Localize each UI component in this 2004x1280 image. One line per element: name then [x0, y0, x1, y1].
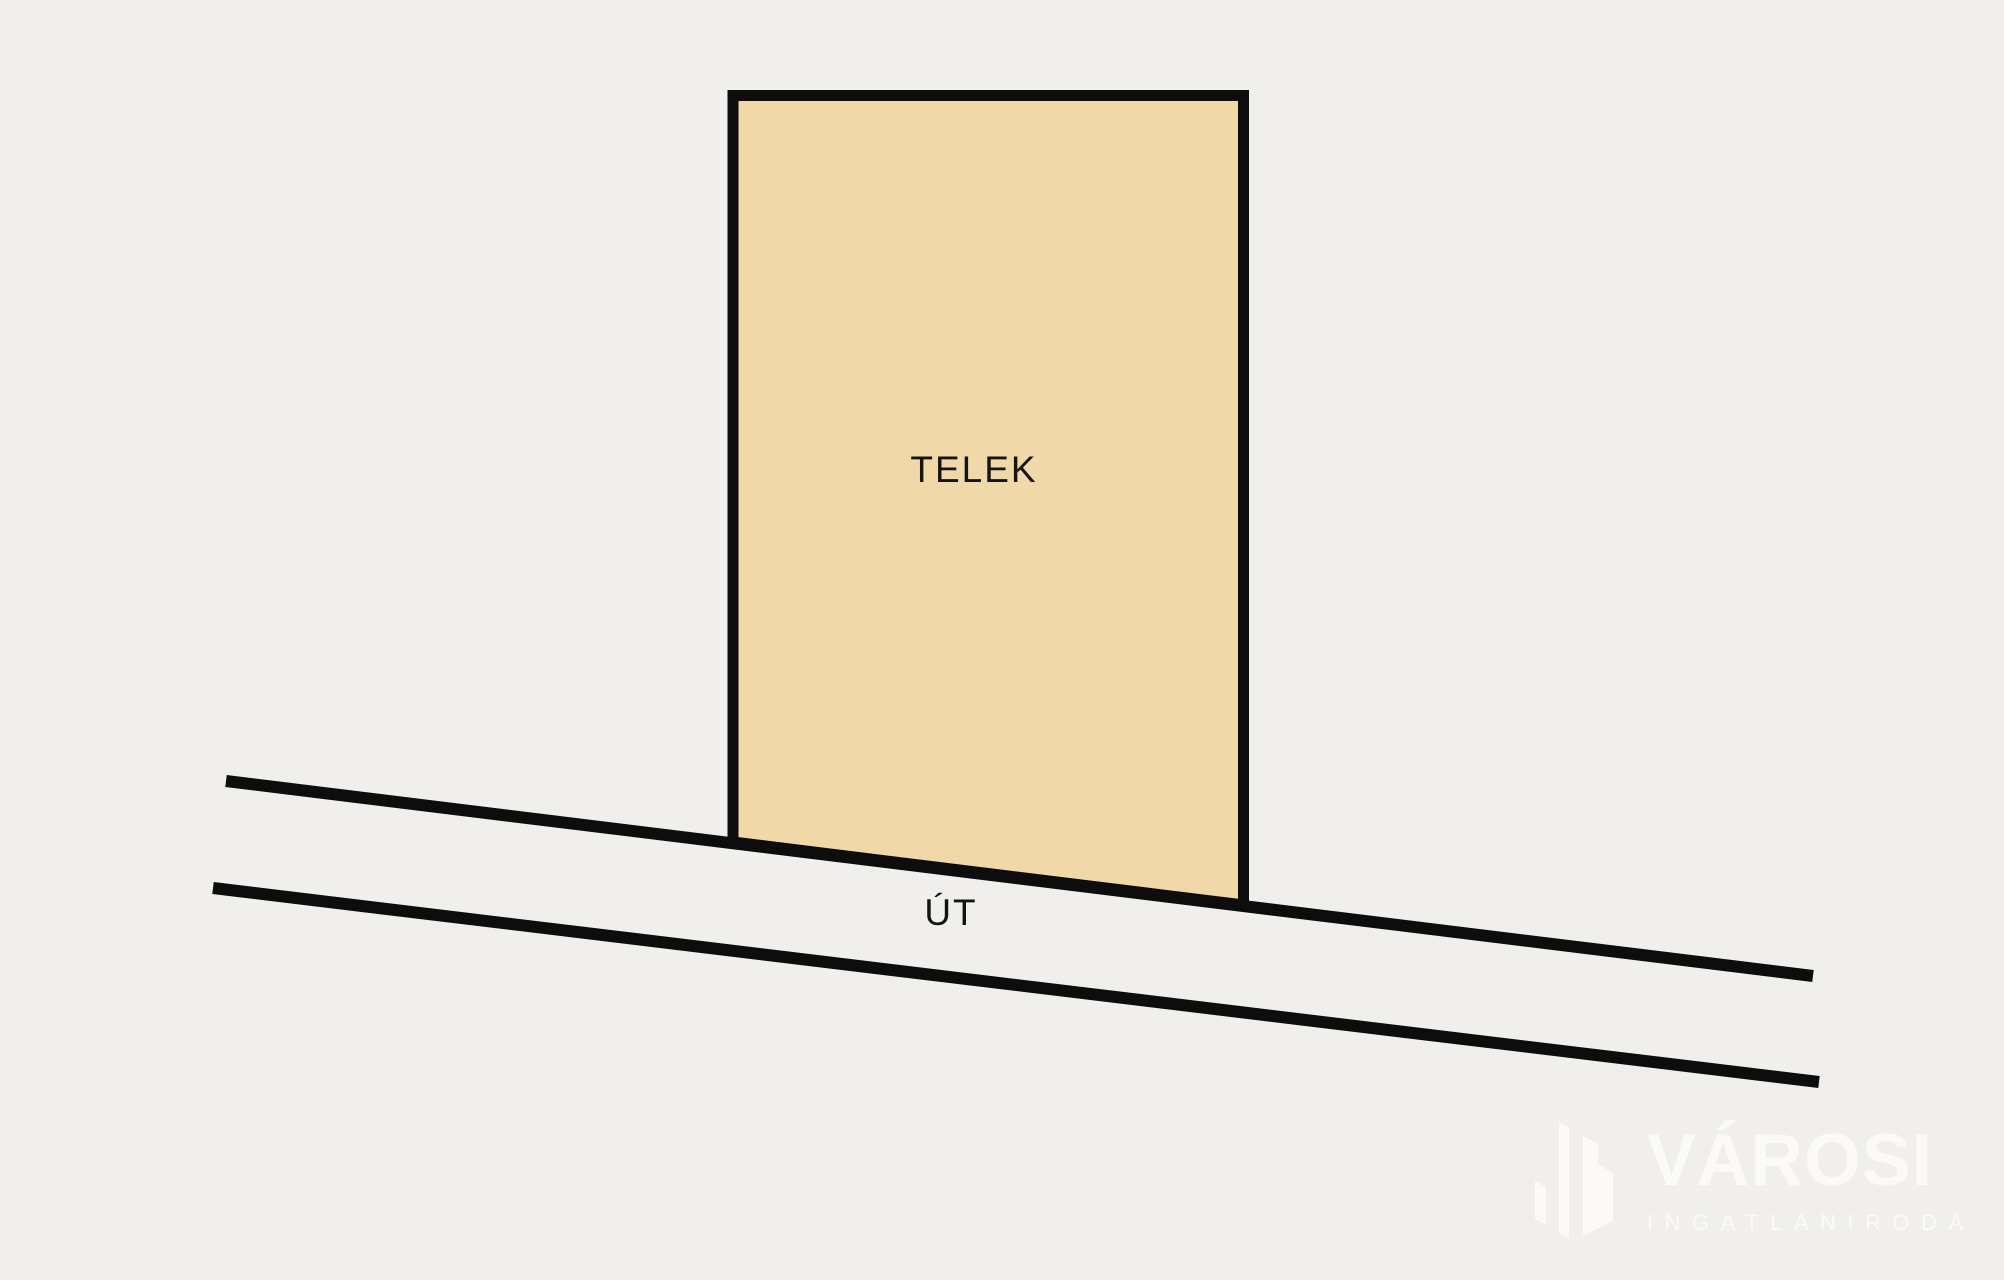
brand-subtitle: INGATLANIRODA — [1647, 1210, 1975, 1236]
road-lower-edge-line — [213, 888, 1819, 1082]
building-left-column — [1559, 1122, 1569, 1239]
building-small-bar — [1535, 1181, 1546, 1225]
plot-shape — [733, 96, 1244, 906]
plot-label: TELEK — [910, 449, 1037, 491]
diagram-canvas — [0, 0, 2004, 1280]
buildings-icon — [1535, 1122, 1613, 1239]
brand-name: VÁROSI — [1647, 1124, 1975, 1197]
brand-watermark: VÁROSI INGATLANIRODA — [1535, 1120, 1975, 1239]
brand-text-block: VÁROSI INGATLANIRODA — [1647, 1120, 1975, 1236]
plot-diagram: TELEK ÚT VÁROSI INGATLANIRODA — [0, 0, 2004, 1280]
road-label: ÚT — [924, 892, 977, 934]
